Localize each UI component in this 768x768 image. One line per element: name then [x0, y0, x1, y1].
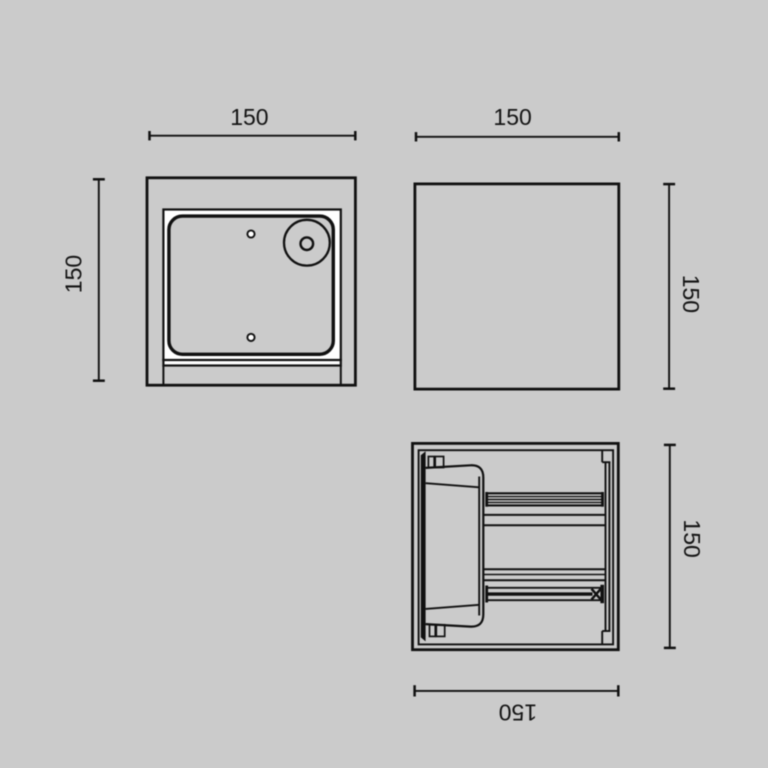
svg-text:150: 150	[493, 104, 531, 130]
svg-text:150: 150	[679, 519, 705, 557]
svg-text:150: 150	[61, 255, 87, 293]
svg-text:150: 150	[230, 104, 268, 130]
svg-text:150: 150	[678, 275, 704, 313]
svg-text:150: 150	[499, 699, 537, 725]
